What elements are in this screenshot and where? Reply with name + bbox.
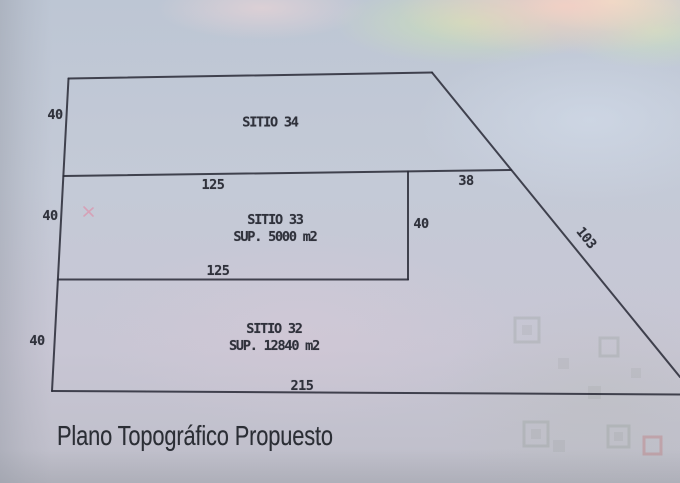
watermark-pattern xyxy=(515,318,661,454)
sitio-32-label: SITIO 32 SUP. 12840 m2 xyxy=(229,321,319,355)
sitio-32-area: SUP. 12840 m2 xyxy=(229,338,319,355)
dim-bottom-side: 215 xyxy=(291,378,314,394)
sitio-33-name: SITIO 33 xyxy=(233,212,316,229)
sitio-32-name: SITIO 32 xyxy=(229,321,319,338)
divider-sitio34-sitio33 xyxy=(64,170,512,176)
boundary-top-edge xyxy=(69,73,433,79)
boundary-left-edge xyxy=(52,79,69,392)
page-title: Plano Topográfico Propuesto xyxy=(57,420,333,452)
sitio-34-label: SITIO 34 xyxy=(242,115,297,132)
dim-left-sitio33: 40 xyxy=(42,208,57,224)
dim-sitio33-top: 125 xyxy=(202,177,225,193)
dim-sitio33-right: 40 xyxy=(413,216,428,232)
dim-sitio33-bottom: 125 xyxy=(207,263,230,279)
boundary-diagonal xyxy=(432,73,680,378)
sitio-33-area: SUP. 5000 m2 xyxy=(233,229,316,246)
boundary-bottom-edge xyxy=(52,391,680,395)
dim-left-sitio34: 40 xyxy=(47,107,62,123)
photographed-plan-page: SITIO 34 SITIO 33 SUP. 5000 m2 SITIO 32 … xyxy=(0,0,680,483)
sitio-34-name: SITIO 34 xyxy=(242,115,297,132)
dim-top-right-segment: 38 xyxy=(458,173,473,189)
dim-left-sitio32: 40 xyxy=(29,333,44,349)
pink-scribble-mark xyxy=(84,207,93,216)
sitio-33-label: SITIO 33 SUP. 5000 m2 xyxy=(233,212,316,246)
